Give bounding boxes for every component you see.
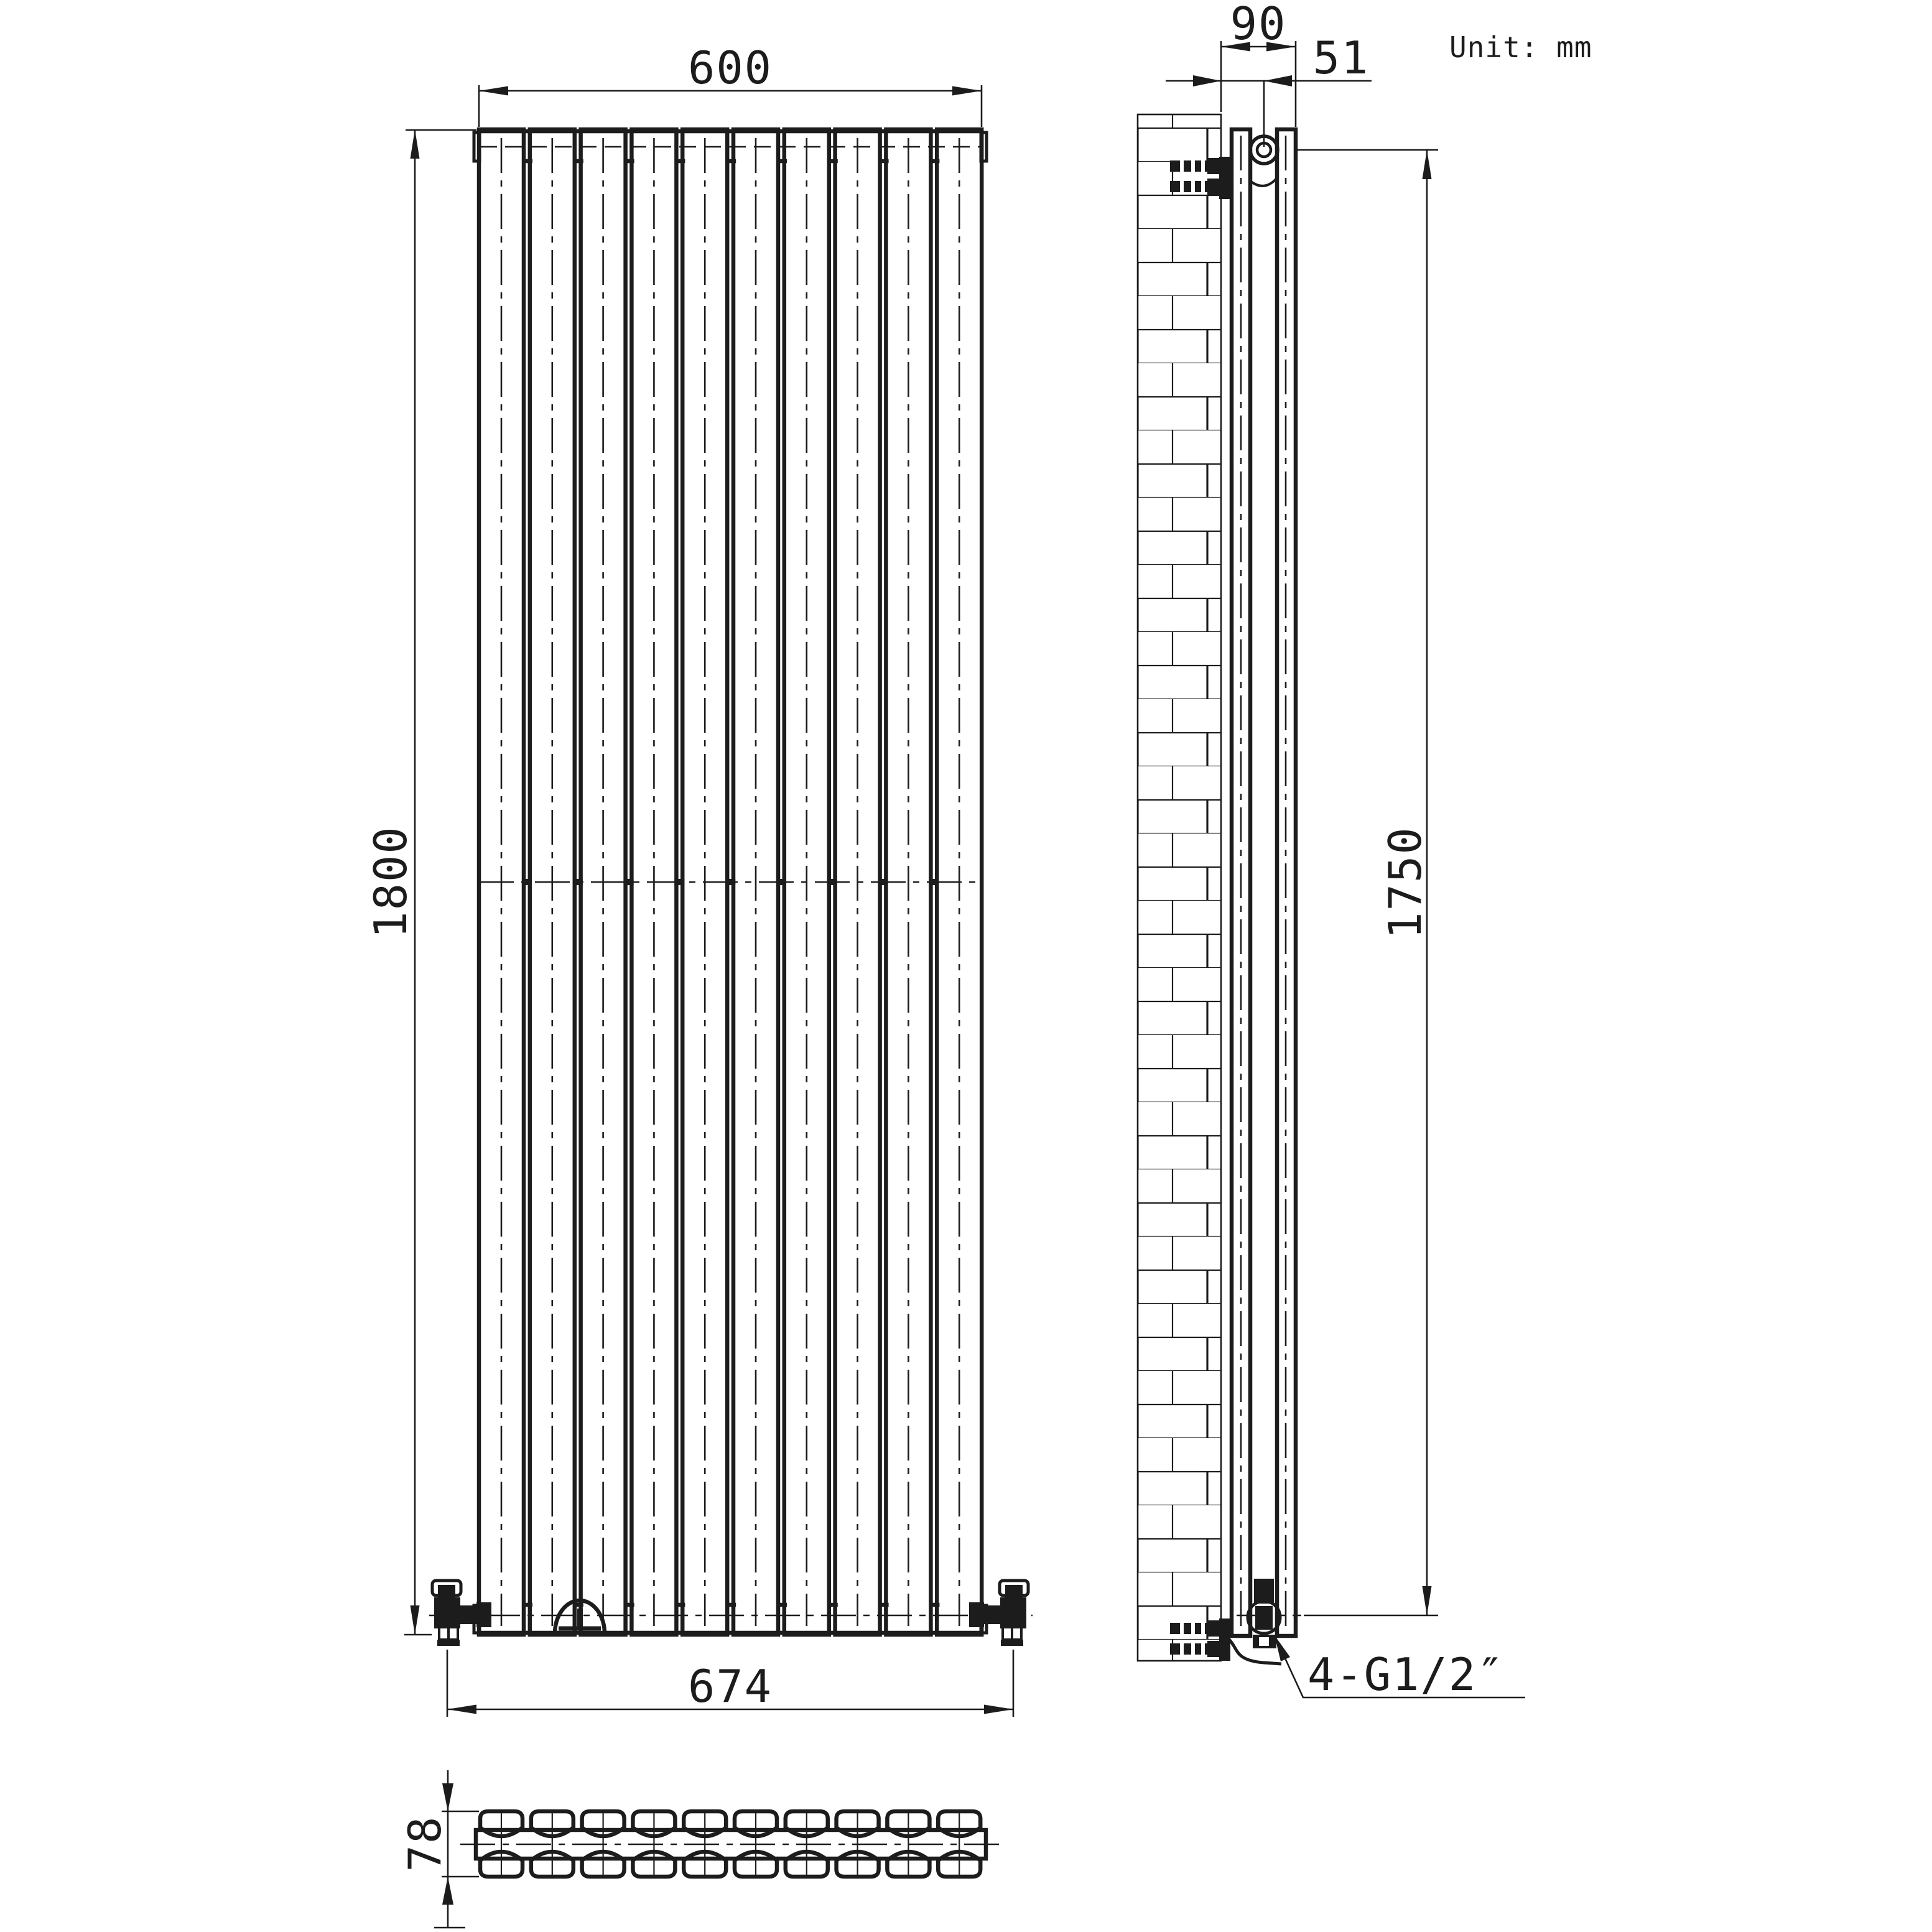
rear-panel-tabs [522,161,939,1605]
dim-text-1800: 1800 [365,825,417,938]
dim-text-90: 90 [1230,0,1287,50]
dim-mount-span-1750: 1750 [1298,150,1438,1615]
dim-text-674: 674 [688,1660,773,1712]
dim-profile-depth-78: 78 [399,1770,479,1928]
dim-text-1750: 1750 [1379,826,1431,939]
dim-front-height: 1800 [365,129,476,1635]
dim-text-600: 600 [688,42,773,94]
dim-depth-90: 90 [1221,0,1296,127]
brick-wall [1138,114,1221,1661]
front-view: 600 1800 674 [365,42,1033,1717]
top-view: 78 [399,1770,1003,1928]
thread-callout: 4-G1/2″ [1275,1635,1525,1701]
dim-text-51: 51 [1313,32,1370,84]
drawing-svg: 600 1800 674 [0,0,1932,1932]
dim-text-78: 78 [399,1816,451,1872]
radiator-technical-drawing: 600 1800 674 [0,0,1932,1932]
thread-label: 4-G1/2″ [1307,1648,1505,1701]
dim-valve-centres: 674 [447,1650,1013,1717]
side-view: 90 51 1750 4-G1/2″ [1138,0,1525,1701]
dim-front-width: 600 [479,42,982,127]
unit-note: Unit: mm [1449,30,1592,64]
